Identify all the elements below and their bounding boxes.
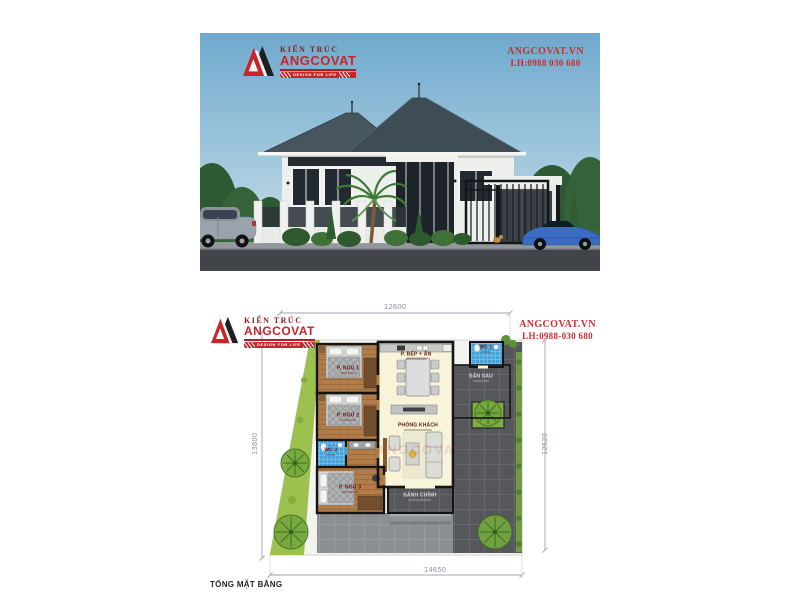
contact-block: ANGCOVAT.VN LH:0988-030 680 (519, 319, 596, 342)
room-label-bedroom1: P. NGỦ 1 (337, 367, 359, 374)
logo-brand: ANGCOVAT (280, 54, 356, 71)
logo-banner: DESIGN FOR LIFE (244, 342, 315, 348)
website-text: ANGCOVAT.VN (507, 46, 584, 58)
banner-stripe-icon (339, 72, 350, 78)
kitchen-island (391, 405, 437, 414)
tree-symbol (281, 449, 309, 477)
room-label-bedroom2: P. NGỦ 2 (337, 414, 359, 421)
dimension-bottom-label: 14650 (310, 566, 560, 574)
banner-stripe-icon (244, 342, 255, 348)
phone-text: LH:0988 030 680 (507, 58, 584, 69)
phone-text: LH:0988-030 680 (519, 331, 596, 342)
room-label-kitchen-dining: P. BẾP + ĂN (401, 353, 432, 360)
plan-title: TỔNG MẶT BẰNG (210, 580, 282, 589)
angcovat-logo-mark-icon (210, 316, 240, 344)
floor-plan-panel: KIẾN TRÚC ANGCOVAT DESIGN FOR LIFE ANGCO… (200, 300, 600, 600)
room-label-porch: SẢNH CHÍNH (403, 494, 436, 501)
banner-stripe-icon (303, 342, 314, 348)
logo-banner: DESIGN FOR LIFE (280, 72, 356, 78)
room-label-backyard: SÂN SAU (469, 375, 493, 382)
dimension-top-label: 12600 (280, 303, 510, 311)
logo-brand: ANGCOVAT (244, 325, 315, 341)
exterior-render-panel: KIẾN TRÚC ANGCOVAT DESIGN FOR LIFE ANGCO… (200, 33, 600, 271)
watermark: ANGCOVAT (350, 442, 490, 457)
room-label-bedroom3: P. NGỦ 3 (339, 486, 361, 493)
dimension-left-label: 13800 (251, 433, 259, 455)
dimension-right-label: 12620 (541, 433, 549, 455)
tree-symbol (475, 400, 501, 426)
page: KIẾN TRÚC ANGCOVAT DESIGN FOR LIFE ANGCO… (0, 0, 800, 600)
angcovat-logo: KIẾN TRÚC ANGCOVAT DESIGN FOR LIFE (242, 45, 356, 78)
banner-stripe-icon (280, 72, 291, 78)
angcovat-logo-mark-icon (242, 45, 276, 77)
contact-block: ANGCOVAT.VN LH:0988 030 680 (507, 46, 584, 69)
room-label-wc1: WC 1 (479, 346, 492, 353)
angcovat-logo: KIẾN TRÚC ANGCOVAT DESIGN FOR LIFE (210, 316, 315, 348)
logo-banner-text: DESIGN FOR LIFE (255, 342, 303, 348)
room-label-wc2: WC 2 (324, 449, 337, 456)
logo-text-block: KIẾN TRÚC ANGCOVAT DESIGN FOR LIFE (280, 45, 356, 78)
logo-text-block: KIẾN TRÚC ANGCOVAT DESIGN FOR LIFE (244, 316, 315, 348)
dining-table (397, 358, 439, 396)
tree-symbol (478, 515, 512, 549)
website-text: ANGCOVAT.VN (519, 319, 596, 331)
logo-banner-text: DESIGN FOR LIFE (291, 72, 339, 78)
room-label-living-room: PHÒNG KHÁCH (398, 424, 438, 431)
tree-symbol (274, 515, 308, 549)
